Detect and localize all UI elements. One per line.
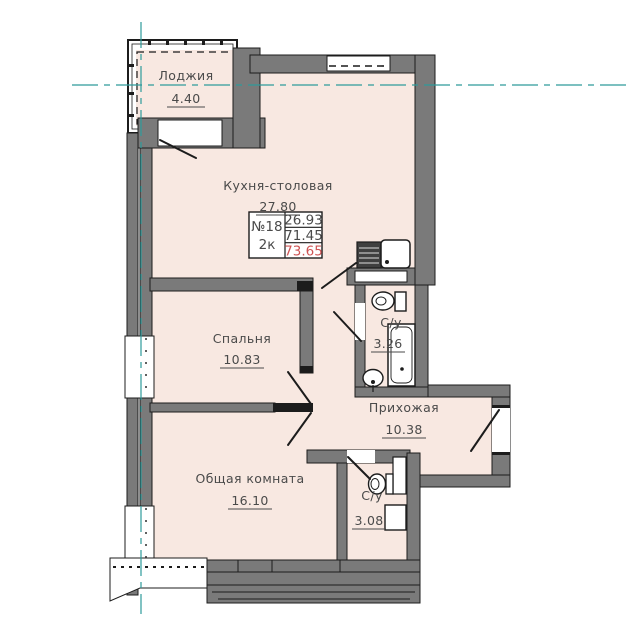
room-area-kitchen: 27.80	[259, 199, 296, 214]
kitchen-sink-drain	[385, 260, 389, 264]
room-area-hallway: 10.38	[385, 422, 422, 437]
toilet-tank	[395, 292, 406, 311]
bathtub-drain	[400, 367, 404, 371]
wall-hallway-north-b	[428, 385, 510, 397]
unit-area-total: 73.65	[284, 244, 323, 260]
stove-icon	[357, 242, 381, 268]
unit-type: 2к	[259, 237, 276, 253]
loggia-door-opening	[158, 120, 222, 146]
unit-area-main: 71.45	[284, 228, 323, 244]
room-label-loggia: Лоджия	[159, 68, 214, 83]
wall-kitchen-bedroom	[150, 278, 313, 291]
wall-hallway-south	[407, 475, 510, 487]
wall-right-kitchen	[415, 55, 435, 285]
wall-cap-door-stub	[273, 403, 313, 412]
bathtub-icon	[388, 324, 415, 386]
room-area-living: 16.10	[231, 493, 268, 508]
duct-shaft	[393, 457, 406, 494]
room-area-loggia: 4.40	[171, 91, 200, 106]
unit-number: №18	[251, 219, 282, 235]
wall-bath-bottom-east	[407, 453, 420, 562]
wall-bedroom-living	[150, 403, 275, 412]
room-area-bath-top: 3.26	[373, 336, 402, 351]
bay-window-bottom-left	[110, 558, 207, 601]
room-label-bath-top: С/у	[380, 315, 402, 330]
room-label-hallway: Прихожая	[369, 400, 439, 415]
wall-right-bath-top	[415, 285, 428, 397]
room-label-living: Общая комната	[195, 471, 304, 486]
kitchen-counter-niche	[355, 271, 407, 282]
room-area-bedroom: 10.83	[223, 352, 260, 367]
toilet-icon	[372, 292, 394, 310]
kitchen-sink-icon	[381, 240, 410, 268]
wall-cap	[297, 281, 313, 291]
room-area-bath-bottom: 3.08	[354, 513, 383, 528]
bedroom-window	[125, 336, 154, 398]
living-window	[125, 506, 154, 564]
door-jamb	[492, 452, 510, 455]
wall-bedroom-east	[300, 291, 313, 373]
wall-lower-balcony	[207, 585, 420, 603]
washing-machine-icon	[385, 505, 406, 530]
floor-bedroom-living	[150, 285, 313, 562]
door-jamb	[492, 405, 510, 408]
kitchen-window	[327, 56, 390, 71]
room-label-bedroom: Спальня	[213, 331, 271, 346]
wall-bath-bottom-west	[337, 463, 347, 562]
unit-info-table: №18 2к 26.93 71.45 73.65	[249, 212, 323, 260]
room-label-bath-bottom: С/у	[361, 488, 383, 503]
floor-plan-page: №18 2к 26.93 71.45 73.65 Лоджия 4.40 Кух…	[0, 0, 635, 635]
wall-hallway-north-a	[355, 387, 428, 397]
washbasin-drain	[371, 380, 375, 384]
wall-cap	[300, 366, 313, 373]
room-label-kitchen: Кухня-столовая	[223, 178, 332, 193]
bath-top-door-opening	[355, 303, 365, 340]
floor-plan: №18 2к 26.93 71.45 73.65 Лоджия 4.40 Кух…	[0, 0, 635, 635]
toilet-tank	[386, 474, 393, 494]
